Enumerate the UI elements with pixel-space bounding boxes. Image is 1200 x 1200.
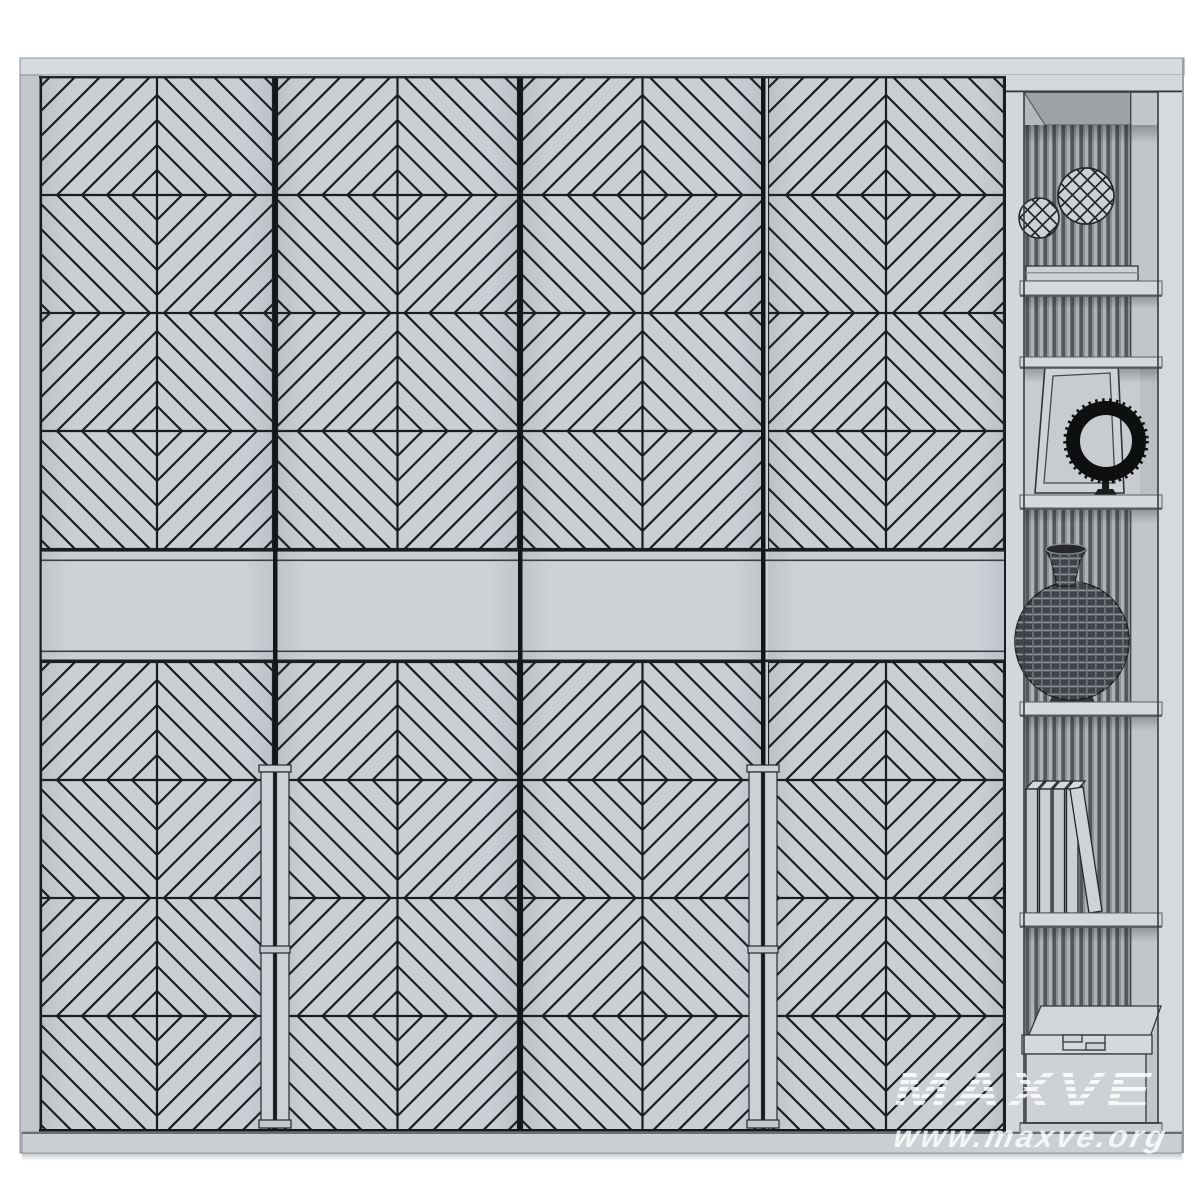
watermark-url: www.maxve.org bbox=[891, 1119, 1172, 1154]
decor-sphere-small bbox=[1019, 198, 1059, 238]
watermark: MAXVE www.maxve.org bbox=[887, 1061, 1171, 1154]
render-stage: MAXVE www.maxve.org bbox=[0, 0, 1200, 1200]
flat-book bbox=[1026, 266, 1138, 281]
shelf-unit-right-stile bbox=[1158, 75, 1184, 1133]
shelf-unit-top-rail bbox=[1006, 75, 1184, 92]
top-panel bbox=[20, 58, 1184, 75]
left-side-panel bbox=[20, 75, 41, 1153]
shelf-unit bbox=[1006, 58, 1184, 1153]
door-pattern-layer bbox=[0, 0, 1111, 1200]
watermark-brand: MAXVE bbox=[887, 1061, 1164, 1120]
shelf-unit-left-stile bbox=[1006, 75, 1024, 1133]
decor-sphere-large bbox=[1058, 168, 1114, 224]
